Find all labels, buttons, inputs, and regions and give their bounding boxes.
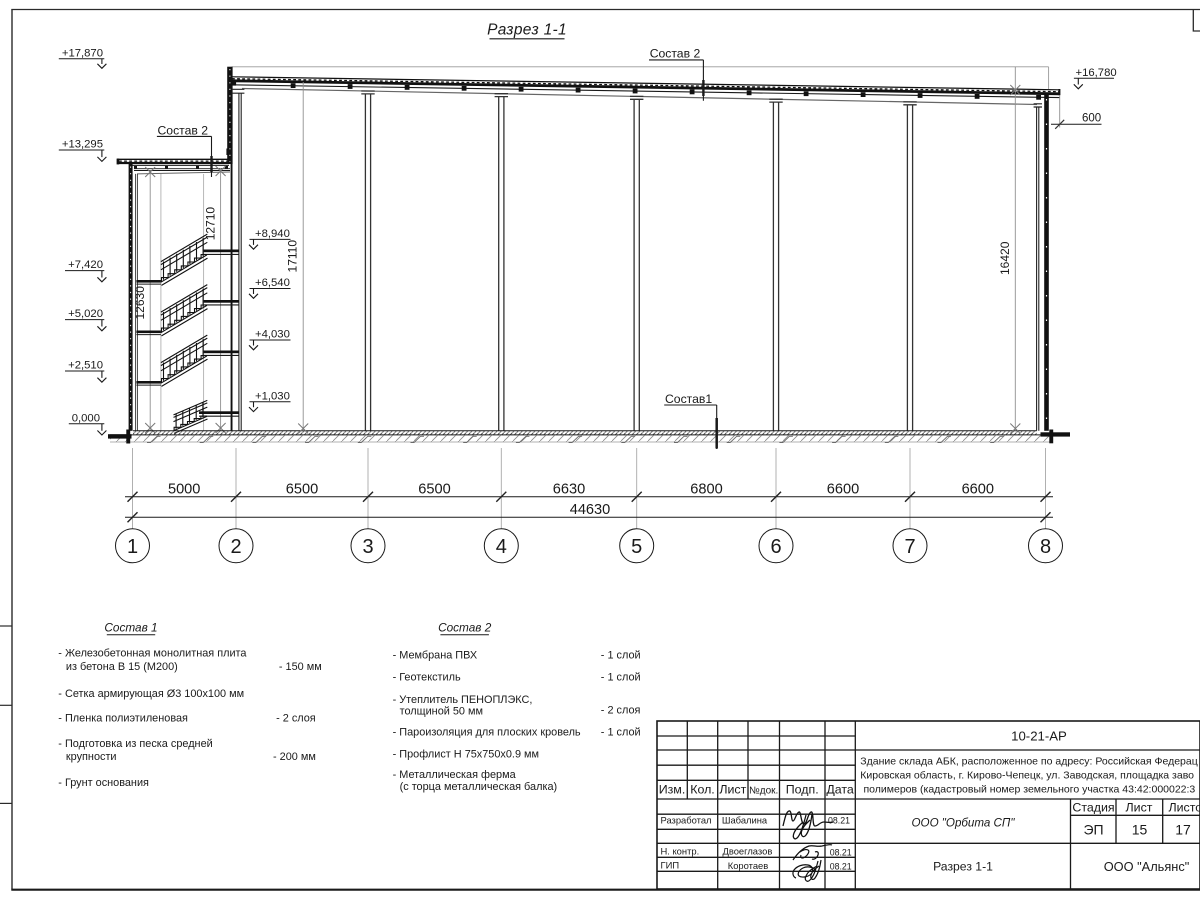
svg-text:12630: 12630	[133, 286, 147, 320]
svg-text:8: 8	[1040, 536, 1051, 558]
svg-text:4: 4	[496, 536, 507, 558]
svg-text:- Грунт основания: - Грунт основания	[58, 777, 149, 789]
svg-text:Коротаев: Коротаев	[728, 860, 769, 871]
svg-text:Подп.: Подп.	[786, 783, 819, 797]
svg-text:Кировская область, г. Кирово-Ч: Кировская область, г. Кирово-Чепецк, ул.…	[860, 769, 1194, 781]
svg-text:- Металлическая ферма: - Металлическая ферма	[393, 769, 517, 781]
svg-text:- 200 мм: - 200 мм	[273, 751, 316, 763]
svg-text:08.21: 08.21	[830, 862, 852, 872]
svg-text:(с торца металлическая балка): (с торца металлическая балка)	[400, 781, 558, 793]
svg-text:15: 15	[1132, 822, 1148, 838]
svg-text:+1,030: +1,030	[255, 391, 290, 403]
svg-text:+2,510: +2,510	[68, 360, 103, 372]
svg-text:ЭП: ЭП	[1083, 822, 1103, 838]
svg-text:6: 6	[770, 536, 781, 558]
svg-text:6630: 6630	[553, 482, 585, 498]
svg-text:ГИП: ГИП	[661, 859, 680, 870]
svg-text:- 1 слой: - 1 слой	[601, 727, 641, 739]
svg-text:6500: 6500	[418, 482, 450, 498]
svg-text:08.21: 08.21	[828, 816, 850, 826]
svg-text:Лист: Лист	[1126, 801, 1153, 815]
svg-text:44630: 44630	[570, 502, 611, 518]
svg-text:10-21-АР: 10-21-АР	[1011, 729, 1067, 744]
svg-text:17110: 17110	[286, 240, 300, 273]
svg-text:полимеров (кадастровый номер з: полимеров (кадастровый номер земельного …	[864, 783, 1196, 795]
svg-text:Шабалина: Шабалина	[722, 815, 768, 826]
svg-text:+16,780: +16,780	[1076, 67, 1117, 79]
svg-text:1: 1	[127, 536, 138, 558]
svg-text:- Сетка армирующая Ø3 100х100: - Сетка армирующая Ø3 100х100 мм	[58, 688, 244, 700]
svg-text:Изм.: Изм.	[659, 783, 686, 797]
svg-text:Стадия: Стадия	[1072, 801, 1114, 815]
svg-text:600: 600	[1082, 113, 1101, 125]
svg-text:- 1 слой: - 1 слой	[601, 649, 641, 661]
svg-text:6600: 6600	[962, 482, 994, 498]
svg-text:+17,870: +17,870	[62, 47, 103, 59]
svg-text:- Геотекстиль: - Геотекстиль	[393, 672, 461, 684]
svg-text:0,000: 0,000	[72, 412, 100, 424]
svg-text:+4,030: +4,030	[255, 329, 290, 341]
svg-text:- Пленка полиэтиленовая: - Пленка полиэтиленовая	[58, 713, 188, 725]
svg-text:- Железобетонная монолитная п: - Железобетонная монолитная плита	[58, 648, 247, 660]
svg-text:+5,020: +5,020	[68, 308, 103, 320]
svg-text:08.21: 08.21	[830, 848, 852, 858]
svg-text:- Мембрана ПВХ: - Мембрана ПВХ	[393, 649, 478, 661]
svg-text:- Утеплитель ПЕНОПЛЭКС,: - Утеплитель ПЕНОПЛЭКС,	[393, 694, 533, 706]
svg-text:- 150 мм: - 150 мм	[279, 661, 322, 673]
svg-text:5: 5	[631, 536, 642, 558]
svg-text:+13,295: +13,295	[62, 139, 103, 151]
svg-text:6500: 6500	[286, 482, 318, 498]
svg-text:- Профлист Н 75х750х0.9 мм: - Профлист Н 75х750х0.9 мм	[393, 749, 539, 761]
svg-text:Состав 2: Состав 2	[438, 621, 492, 635]
svg-text:Состав 1: Состав 1	[104, 621, 157, 635]
svg-text:Разрез 1-1: Разрез 1-1	[933, 859, 993, 873]
svg-text:2: 2	[230, 536, 241, 558]
svg-text:Листов: Листов	[1169, 801, 1200, 815]
svg-text:- Пароизоляция для плоских кро: - Пароизоляция для плоских кровель	[393, 727, 581, 739]
svg-text:6600: 6600	[827, 482, 859, 498]
svg-text:крупности: крупности	[66, 751, 117, 763]
svg-text:+8,940: +8,940	[255, 228, 290, 240]
svg-text:Состав 2: Состав 2	[650, 47, 701, 61]
svg-text:Лист: Лист	[719, 783, 746, 797]
svg-text:+7,420: +7,420	[68, 259, 103, 271]
svg-text:№док.: №док.	[749, 786, 778, 797]
svg-text:ООО "Альянс": ООО "Альянс"	[1104, 859, 1190, 874]
svg-text:Состав 2: Состав 2	[158, 123, 209, 137]
svg-text:7: 7	[904, 536, 915, 558]
svg-text:Кол.: Кол.	[690, 783, 715, 797]
svg-text:из бетона В 15 (М200): из бетона В 15 (М200)	[66, 661, 178, 673]
svg-text:толщиной 50 мм: толщиной 50 мм	[400, 706, 483, 718]
svg-text:Двоеглазов: Двоеглазов	[722, 846, 772, 857]
svg-text:- 2 слоя: - 2 слоя	[601, 704, 641, 716]
svg-text:- 1 слой: - 1 слой	[601, 672, 641, 684]
svg-text:+6,540: +6,540	[255, 277, 290, 289]
svg-text:ООО "Орбита СП": ООО "Орбита СП"	[912, 817, 1016, 830]
svg-text:Разрез 1-1: Разрез 1-1	[487, 21, 567, 38]
svg-text:17: 17	[1175, 822, 1191, 838]
svg-text:Здание склада АБК, расположенн: Здание склада АБК, расположенное по адре…	[860, 755, 1197, 767]
svg-text:3: 3	[362, 536, 373, 558]
svg-text:16420: 16420	[998, 241, 1012, 275]
svg-text:Разработал: Разработал	[661, 814, 712, 825]
svg-text:Дата: Дата	[826, 783, 854, 797]
svg-text:Н. контр.: Н. контр.	[661, 845, 700, 856]
svg-text:6800: 6800	[690, 482, 722, 498]
svg-text:5000: 5000	[168, 482, 200, 498]
svg-text:- Подготовка из песка средней: - Подготовка из песка средней	[58, 738, 212, 750]
svg-text:- 2 слоя: - 2 слоя	[276, 713, 316, 725]
svg-text:Состав1: Состав1	[665, 392, 712, 406]
